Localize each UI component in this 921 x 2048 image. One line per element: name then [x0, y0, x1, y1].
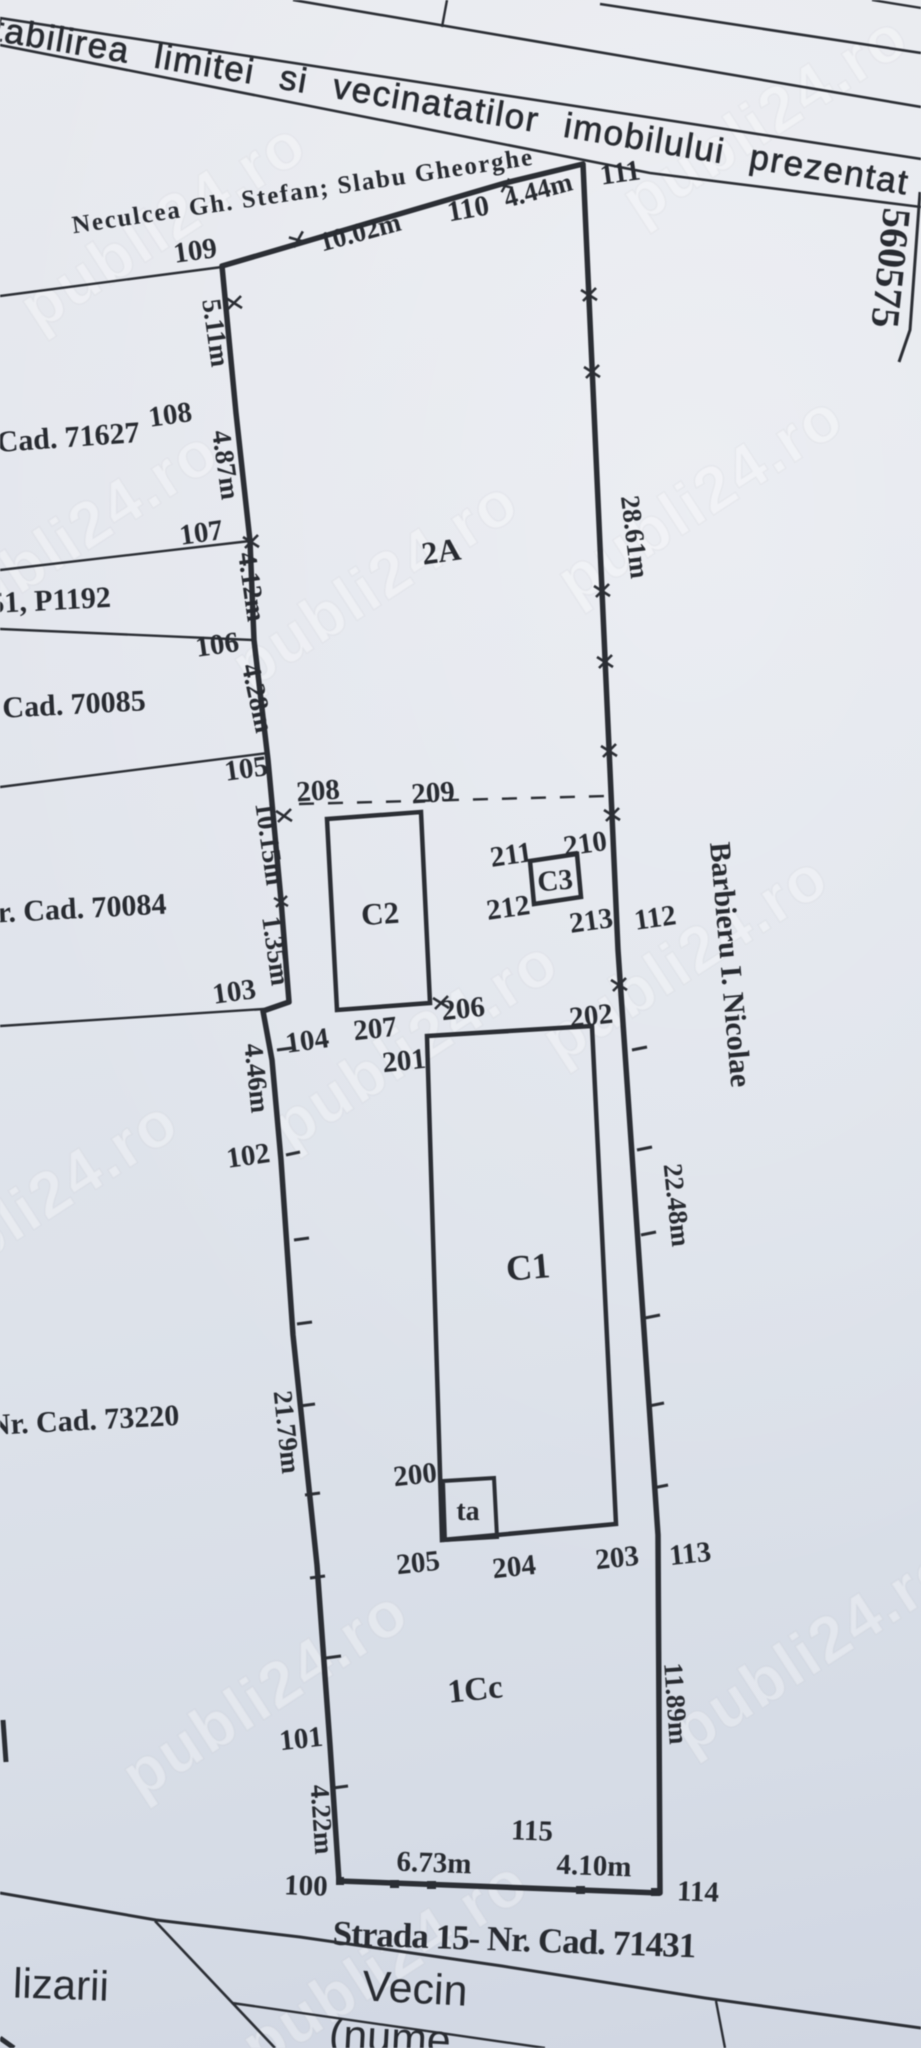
svg-text:210: 210 [561, 825, 609, 863]
svg-text:203: 203 [594, 1540, 641, 1576]
svg-text:22.48m: 22.48m [658, 1162, 697, 1248]
svg-text:111: 111 [598, 154, 642, 191]
svg-text:103: 103 [210, 973, 258, 1011]
svg-text:Cad. 71627: Cad. 71627 [0, 416, 141, 459]
svg-text:51, P1192: 51, P1192 [0, 581, 112, 620]
svg-text:ta: ta [456, 1496, 479, 1527]
svg-text:r. Cad. 70084: r. Cad. 70084 [0, 888, 167, 930]
svg-text:200: 200 [392, 1457, 439, 1493]
svg-text:206: 206 [440, 991, 487, 1027]
svg-text:publi24.ro: publi24.ro [543, 379, 855, 617]
svg-text:C2: C2 [360, 895, 400, 933]
svg-text:4.10m: 4.10m [556, 1849, 632, 1884]
svg-text:4.46m: 4.46m [238, 1042, 275, 1115]
svg-text:101: 101 [278, 1721, 325, 1757]
svg-text:212: 212 [484, 889, 532, 927]
svg-text:209: 209 [410, 776, 456, 811]
svg-text:4.22m: 4.22m [305, 1784, 340, 1856]
svg-text:201: 201 [381, 1043, 428, 1079]
svg-text:110: 110 [445, 190, 492, 229]
svg-text:lizarii: lizarii [12, 1959, 109, 2009]
svg-text:106: 106 [193, 626, 241, 664]
svg-text:C3: C3 [536, 864, 574, 899]
svg-text:202: 202 [568, 998, 615, 1034]
svg-text:109: 109 [171, 232, 219, 270]
svg-text:100: 100 [284, 1869, 329, 1902]
svg-text:208: 208 [295, 774, 341, 809]
svg-text:10.02m: 10.02m [316, 207, 405, 258]
svg-text:4.12m: 4.12m [232, 550, 271, 624]
svg-text:10.15m: 10.15m [249, 800, 290, 887]
svg-text:107: 107 [177, 514, 225, 552]
svg-text:6.73m: 6.73m [396, 1846, 472, 1881]
svg-text:113: 113 [668, 1536, 713, 1572]
svg-text:104: 104 [283, 1022, 331, 1060]
svg-text:1.35m: 1.35m [256, 914, 295, 988]
svg-text:11.89m: 11.89m [658, 1662, 694, 1746]
svg-text:(nume: (nume [328, 2011, 452, 2048]
svg-text:1Cc: 1Cc [446, 1669, 504, 1711]
svg-text:108: 108 [146, 396, 194, 434]
svg-text:publi24.ro: publi24.ro [0, 1084, 191, 1322]
svg-text:211: 211 [488, 836, 534, 874]
svg-text:Cad. 70085: Cad. 70085 [2, 684, 147, 724]
svg-text:115: 115 [510, 1814, 553, 1847]
svg-text:publi24.ro: publi24.ro [108, 1574, 420, 1812]
svg-text:105: 105 [222, 750, 270, 788]
svg-text:205: 205 [395, 1545, 442, 1581]
svg-text:114: 114 [676, 1875, 719, 1908]
svg-text:2A: 2A [419, 530, 463, 571]
svg-text:112: 112 [632, 899, 678, 937]
svg-text:Vecin: Vecin [361, 1962, 469, 2015]
svg-text:102: 102 [224, 1137, 272, 1175]
svg-text:213: 213 [567, 902, 615, 940]
svg-text:Nr. Cad. 73220: Nr. Cad. 73220 [0, 1399, 180, 1442]
svg-text:204: 204 [491, 1549, 538, 1585]
svg-text:207: 207 [352, 1011, 399, 1047]
svg-text:C1: C1 [504, 1245, 551, 1289]
svg-text:publi24.ro: publi24.ro [528, 839, 840, 1077]
